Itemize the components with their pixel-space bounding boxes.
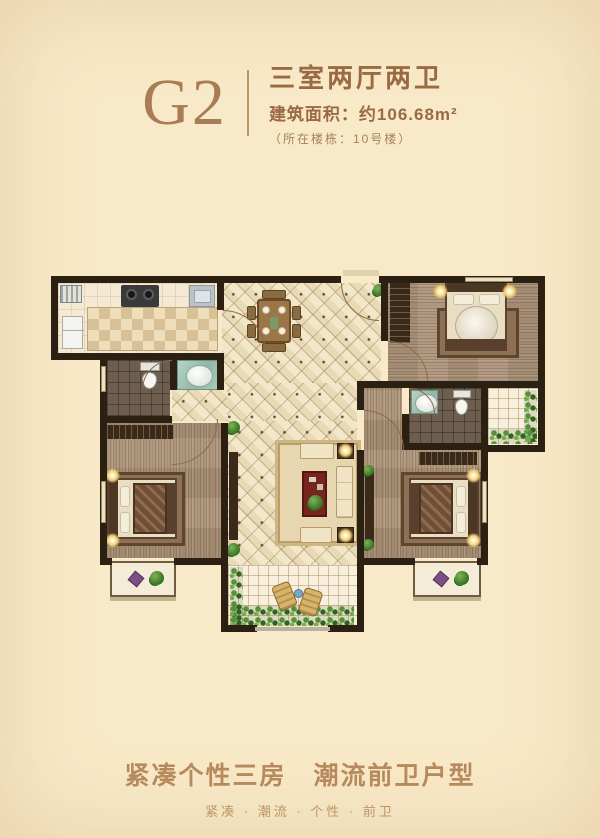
plate-icon [278,306,286,314]
toilet-icon-2 [453,390,471,416]
balcony-plants [230,605,354,626]
wall [357,388,364,410]
wall [51,276,58,360]
hallway-upper [218,383,357,421]
dining-chair-icon [292,306,301,320]
wall [357,381,545,388]
wall [221,565,228,631]
wall [481,388,488,443]
lamp-icon [105,468,120,483]
master-bed-icon [445,281,507,351]
lamp-icon [466,533,481,548]
bed-icon [409,478,479,539]
fridge-divider [63,330,84,331]
bay-plant-icon [150,571,164,585]
lamp-icon [502,284,517,299]
sink-basin [194,290,211,303]
header-divider [247,70,249,136]
bay-window-left [110,561,176,597]
washbasin-counter [177,360,218,390]
table-item [317,484,323,490]
wall [221,625,257,632]
hallway-nook [172,390,227,421]
potted-plant-icon [227,543,240,556]
entry-threshold [343,270,379,276]
potted-plant-icon [363,539,374,550]
sofa-icon [336,466,353,518]
lamp-icon [433,284,448,299]
dining-chair-icon [262,290,286,299]
washbasin-icon [186,365,213,387]
wall [402,443,488,450]
coffee-table-icon [302,471,327,517]
potted-plant-icon [363,465,374,476]
wall [357,558,415,565]
wall [51,276,341,283]
lamp-icon [466,468,481,483]
bay-pillow-icon [433,571,450,588]
bay-window-right [413,561,481,597]
kitchen-sink-icon [189,285,215,307]
wall [51,353,223,360]
table-item [309,477,316,482]
building-area: 建筑面积：约106.68m² [269,100,458,125]
window-icon [482,481,487,523]
lamp-icon [338,528,353,543]
wall [477,558,488,565]
slogan: 紧凑个性三房 潮流前卫户型 [0,756,600,792]
layout-type-title: 三室两厅两卫 [269,58,458,95]
stove-icon [121,285,159,307]
desk-icon [365,471,374,547]
bay-pillow-icon [128,571,145,588]
table-runner [270,317,278,329]
header-info: 三室两厅两卫 建筑面积：约106.68m² （所在楼栋：10号楼） [269,58,458,147]
wall [328,625,364,632]
sofa-icon [300,443,334,459]
building-note: （所在楼栋：10号楼） [269,130,458,147]
wardrobe-icon [107,425,173,439]
plan-footer: 紧凑个性三房 潮流前卫户型 紧凑 · 潮流 · 个性 · 前卫 [0,756,600,820]
wall [357,565,364,631]
floorplan-brochure-page: G2 三室两厅两卫 建筑面积：约106.68m² （所在楼栋：10号楼） [0,0,600,838]
balcony-table-icon [294,589,303,598]
plan-header: G2 三室两厅两卫 建筑面积：约106.68m² （所在楼栋：10号楼） [0,58,600,147]
window-icon [101,366,106,392]
wall [100,558,112,565]
lamp-icon [105,533,120,548]
wall [538,276,545,452]
wall [174,558,228,565]
wall [217,353,224,390]
burner-icon [143,289,154,300]
wardrobe-icon [390,281,410,343]
wall [379,276,545,283]
sofa-set [275,440,361,546]
window-icon [101,481,106,523]
plate-icon [278,327,286,335]
dining-chair-icon [292,324,301,338]
potted-plant-icon [227,421,240,434]
table-flowers-icon [308,495,323,510]
hall-console-icon [229,452,238,540]
bay-plant-icon [455,571,469,585]
wall [217,276,224,310]
floor-plan [45,256,550,654]
wall [481,445,545,452]
wall [357,450,364,565]
burner-icon [126,289,137,300]
tagline: 紧凑 · 潮流 · 个性 · 前卫 [0,801,600,820]
plate-icon [262,327,270,335]
kitchen-counter [87,307,218,351]
lamp-icon [338,443,353,458]
fridge-icon [62,316,83,349]
wall [381,276,388,341]
balcony-railing [255,627,330,631]
balcony-plants [490,429,537,444]
sofa-icon [300,527,332,543]
wall [100,416,172,423]
kitchen-window-icon [60,285,82,303]
wall [221,423,228,565]
window-icon [465,277,513,282]
plan-code: G2 [142,70,227,136]
wardrobe-icon [419,452,477,465]
wall [402,414,409,443]
bed-icon [107,478,177,539]
plate-icon [262,306,270,314]
